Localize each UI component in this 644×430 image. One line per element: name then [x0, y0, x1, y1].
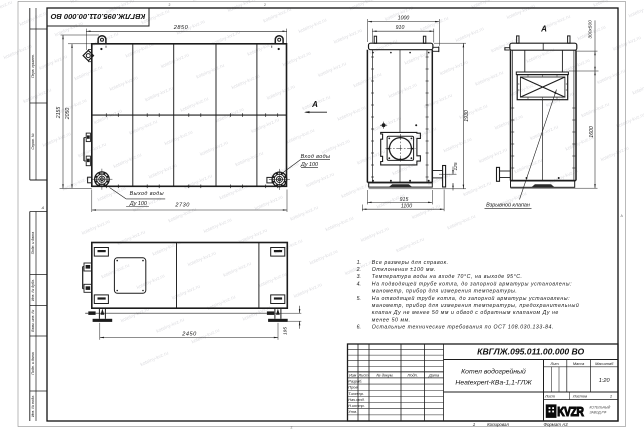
svg-text:Н.контр.: Н.контр.: [348, 403, 364, 408]
svg-text:2050: 2050: [65, 108, 71, 121]
svg-text:А: А: [540, 24, 547, 33]
svg-text:Подп. и дата: Подп. и дата: [31, 352, 35, 375]
svg-text:Отклонения ±100 мм.: Отклонения ±100 мм.: [372, 267, 436, 273]
svg-text:Дата: Дата: [428, 373, 440, 378]
svg-text:манометр, прибор для измерения: манометр, прибор для измерения температу…: [372, 289, 518, 295]
svg-text:2850: 2850: [173, 25, 189, 31]
svg-text:Выход воды: Выход воды: [130, 191, 164, 197]
svg-text:2450: 2450: [181, 331, 197, 337]
svg-text:Heatexpert-КВа-1,1-ГЛЖ: Heatexpert-КВа-1,1-ГЛЖ: [455, 379, 532, 386]
svg-text:Лист: Лист: [544, 394, 556, 399]
svg-text:1:20: 1:20: [599, 378, 611, 384]
svg-text:1000: 1000: [398, 16, 410, 22]
svg-text:А: А: [311, 100, 318, 109]
svg-text:Масса: Масса: [573, 361, 585, 366]
svg-text:Формат А3: Формат А3: [543, 422, 568, 427]
svg-text:1600: 1600: [589, 126, 595, 138]
svg-text:125: 125: [453, 162, 459, 170]
svg-text:Нач.отд.: Нач.отд.: [348, 397, 364, 402]
svg-text:1.: 1.: [357, 260, 361, 266]
svg-text:менее 50 мм.: менее 50 мм.: [372, 317, 411, 323]
svg-text:Лит.: Лит.: [550, 361, 560, 366]
svg-text:Взрывной клапан: Взрывной клапан: [486, 202, 530, 209]
svg-text:Температура воды на входе 70°С: Температура воды на входе 70°С, на выход…: [372, 274, 523, 280]
svg-text:Остальные технические требован: Остальные технические требования по ОСТ …: [372, 325, 554, 331]
svg-text:№ докум.: № докум.: [376, 373, 393, 378]
svg-text:Ду 100: Ду 100: [300, 162, 318, 168]
svg-text:910: 910: [396, 25, 405, 31]
svg-text:4.: 4.: [357, 281, 361, 287]
svg-text:2: 2: [169, 3, 171, 7]
svg-text:Изм: Изм: [349, 373, 357, 378]
svg-text:Пров.: Пров.: [348, 385, 358, 390]
svg-text:манометр, прибор для измерения: манометр, прибор для измерения температу…: [372, 302, 579, 309]
svg-text:Подп.: Подп.: [408, 373, 418, 378]
svg-text:2: 2: [264, 3, 266, 7]
svg-text:195: 195: [283, 327, 289, 335]
svg-text:2.: 2.: [356, 267, 361, 273]
svg-text:КОТЕЛЬНЫЙ: КОТЕЛЬНЫЙ: [590, 405, 611, 409]
svg-text:5.: 5.: [357, 296, 361, 302]
svg-text:6.: 6.: [357, 325, 361, 331]
svg-text:Все размеры для справок.: Все размеры для справок.: [372, 260, 449, 266]
svg-text:915: 915: [400, 197, 409, 203]
svg-text:2730: 2730: [174, 202, 190, 208]
svg-text:клапан Ду не менее 50 мм и обв: клапан Ду не менее 50 мм и обвод с обрат…: [372, 310, 559, 316]
svg-text:2: 2: [291, 425, 293, 429]
svg-text:1: 1: [610, 394, 612, 399]
svg-text:На подводящей трубе котла, до: На подводящей трубе котла, до запорной а…: [372, 280, 572, 287]
svg-text:Котел водогрейный: Котел водогрейный: [461, 367, 526, 375]
svg-text:На отводящей трубе котла, до з: На отводящей трубе котла, до запорной ар…: [372, 295, 570, 302]
svg-text:KVZR: KVZR: [557, 406, 584, 419]
svg-text:Вход воды: Вход воды: [301, 154, 331, 160]
svg-text:2155: 2155: [56, 107, 62, 120]
svg-text:КВГЛЖ.095.011.00.000 ВО: КВГЛЖ.095.011.00.000 ВО: [477, 347, 584, 357]
svg-text:Лист: Лист: [357, 373, 369, 378]
svg-text:Инв. № подл.: Инв. № подл.: [31, 395, 35, 417]
svg-text:Перв. примен.: Перв. примен.: [31, 54, 35, 78]
svg-text:Разраб.: Разраб.: [348, 378, 362, 383]
svg-text:А: А: [41, 205, 45, 210]
svg-text:Т.контр.: Т.контр.: [348, 391, 364, 396]
svg-text:1100: 1100: [401, 204, 412, 210]
svg-text:Подп. и дата: Подп. и дата: [31, 232, 35, 255]
svg-text:ЗАВОД.РФ: ЗАВОД.РФ: [590, 410, 607, 414]
svg-text:Ду 100: Ду 100: [129, 201, 147, 207]
svg-text:Утв.: Утв.: [348, 409, 357, 414]
svg-text:300х500: 300х500: [588, 20, 594, 39]
svg-text:1930: 1930: [464, 110, 470, 122]
svg-text:КВГЛЖ.095.011.00.000 ВО: КВГЛЖ.095.011.00.000 ВО: [51, 12, 146, 21]
svg-text:Масштаб: Масштаб: [595, 361, 614, 366]
svg-text:Листов: Листов: [572, 394, 587, 399]
svg-text:Инв. № дубл.: Инв. № дубл.: [31, 279, 35, 301]
svg-text:Копировал: Копировал: [487, 422, 509, 427]
svg-text:Взам. инв. №: Взам. инв. №: [31, 310, 35, 332]
svg-text:Справ. №: Справ. №: [31, 133, 35, 149]
svg-text:3.: 3.: [357, 274, 361, 280]
